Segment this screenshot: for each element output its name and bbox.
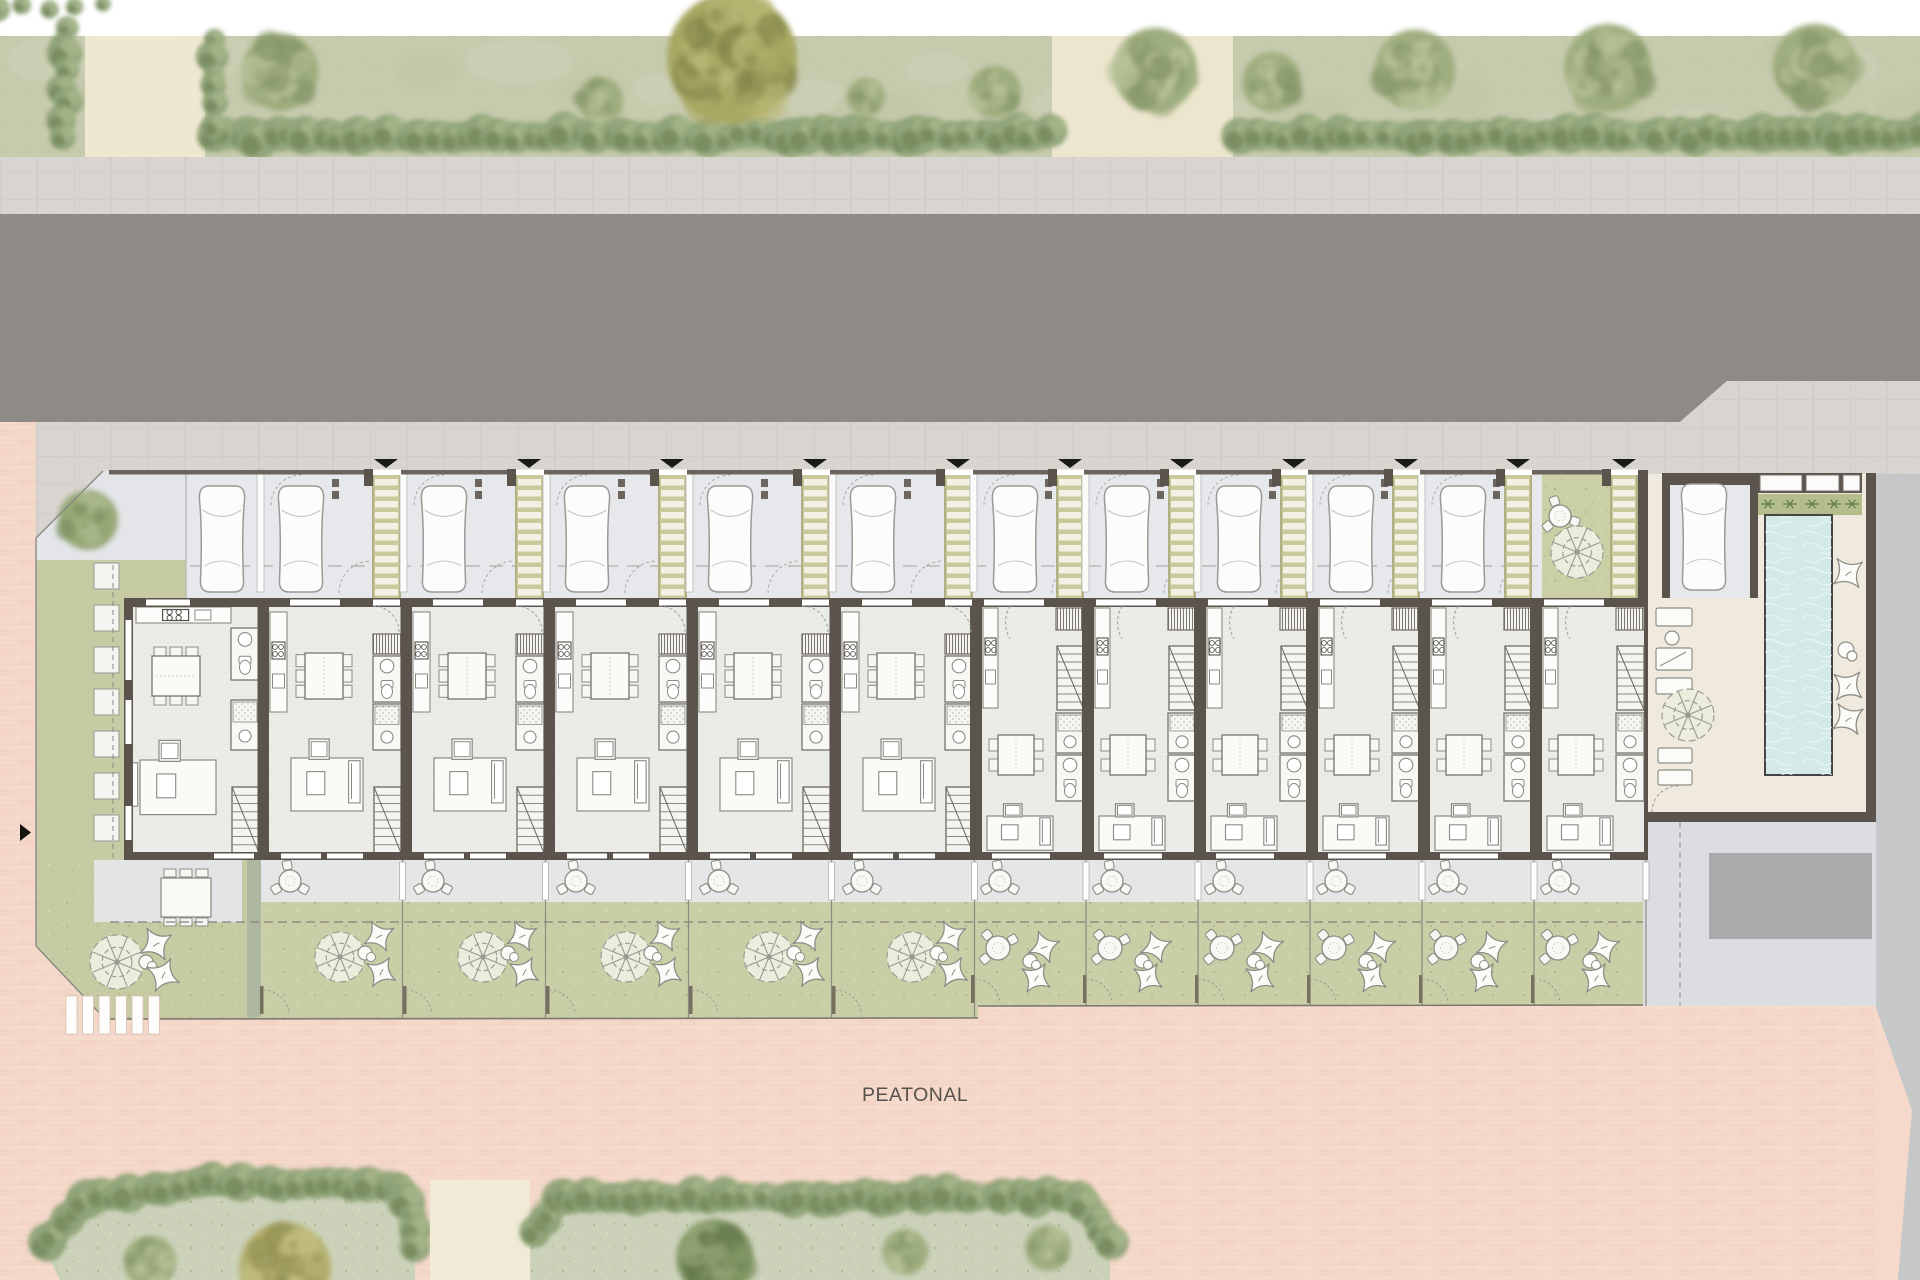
svg-text:PEATONAL: PEATONAL: [862, 1084, 968, 1106]
